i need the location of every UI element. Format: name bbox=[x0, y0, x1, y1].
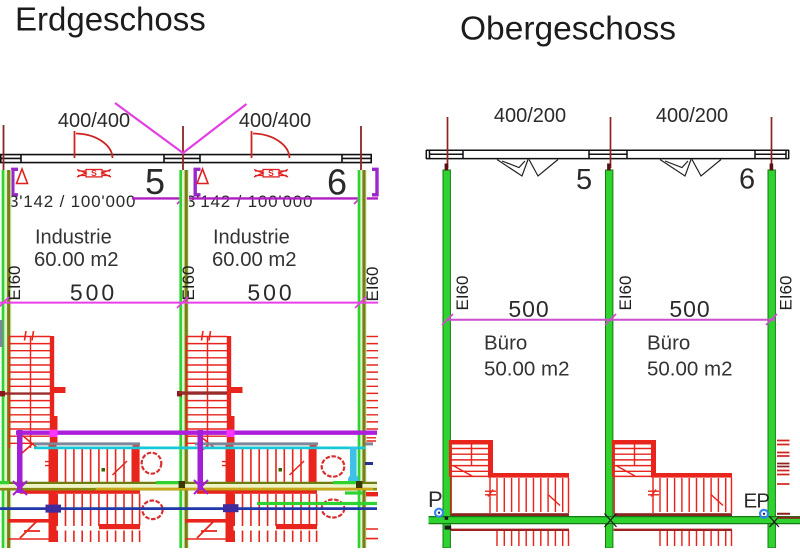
svg-text:6: 6 bbox=[327, 162, 347, 203]
svg-text:60.00 m2: 60.00 m2 bbox=[212, 249, 297, 271]
svg-text:6: 6 bbox=[739, 164, 755, 196]
svg-text:S: S bbox=[268, 168, 274, 178]
svg-text:60.00 m2: 60.00 m2 bbox=[34, 249, 119, 271]
svg-text:EI60: EI60 bbox=[453, 276, 472, 311]
svg-text:Industrie: Industrie bbox=[35, 227, 112, 249]
svg-text:400/200: 400/200 bbox=[494, 105, 566, 127]
svg-text:400/400: 400/400 bbox=[58, 110, 130, 132]
svg-text:EI60: EI60 bbox=[776, 276, 795, 311]
svg-text:400/200: 400/200 bbox=[656, 105, 728, 127]
svg-text:3'142 / 100'000: 3'142 / 100'000 bbox=[9, 192, 136, 211]
svg-text:EI60: EI60 bbox=[5, 266, 24, 301]
svg-text:EI60: EI60 bbox=[363, 267, 382, 302]
svg-text:Büro: Büro bbox=[484, 332, 527, 355]
svg-text:S: S bbox=[91, 168, 97, 178]
svg-text:50.00 m2: 50.00 m2 bbox=[484, 358, 569, 381]
svg-text:400/400: 400/400 bbox=[239, 110, 311, 132]
svg-text:Büro: Büro bbox=[647, 332, 690, 355]
svg-text:Erdgeschoss: Erdgeschoss bbox=[15, 1, 206, 38]
svg-text:Industrie: Industrie bbox=[213, 227, 290, 249]
svg-text:EI60: EI60 bbox=[616, 276, 635, 311]
svg-text:Obergeschoss: Obergeschoss bbox=[460, 11, 676, 48]
svg-text:EI60: EI60 bbox=[179, 266, 198, 301]
svg-text:50.00 m2: 50.00 m2 bbox=[647, 358, 732, 381]
svg-text:5: 5 bbox=[145, 161, 165, 202]
svg-text:3'142 / 100'000: 3'142 / 100'000 bbox=[186, 192, 313, 211]
svg-text:5: 5 bbox=[576, 164, 592, 196]
svg-text:500: 500 bbox=[669, 296, 710, 322]
svg-text:500: 500 bbox=[508, 296, 549, 322]
